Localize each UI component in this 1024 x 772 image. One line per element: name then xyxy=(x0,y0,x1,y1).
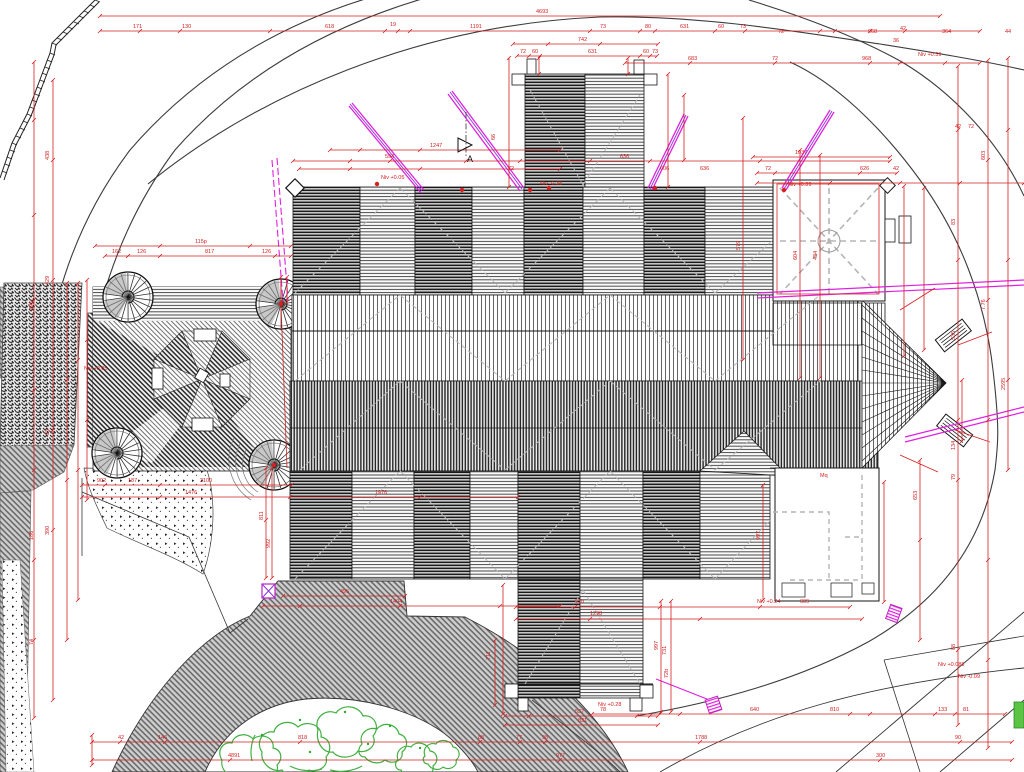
svg-text:42: 42 xyxy=(900,26,906,32)
svg-text:495: 495 xyxy=(340,589,349,595)
svg-text:77: 77 xyxy=(516,735,522,741)
svg-text:72: 72 xyxy=(778,29,784,35)
svg-text:88: 88 xyxy=(478,735,484,741)
svg-text:72: 72 xyxy=(968,124,974,130)
svg-text:631: 631 xyxy=(680,24,689,30)
svg-text:992: 992 xyxy=(266,539,272,548)
svg-text:186: 186 xyxy=(29,531,35,540)
svg-text:968: 968 xyxy=(862,56,871,62)
svg-text:A: A xyxy=(467,154,473,164)
svg-text:134: 134 xyxy=(951,441,957,450)
svg-text:606: 606 xyxy=(660,166,669,172)
svg-text:42: 42 xyxy=(893,166,899,172)
svg-text:72b: 72b xyxy=(664,669,670,678)
svg-text:594: 594 xyxy=(385,154,394,160)
svg-text:Niv +0.39: Niv +0.39 xyxy=(788,182,811,188)
svg-text:73: 73 xyxy=(652,49,658,55)
svg-text:438: 438 xyxy=(45,151,51,160)
svg-text:1404: 1404 xyxy=(390,599,402,605)
svg-text:7.76: 7.76 xyxy=(981,299,987,310)
svg-text:72: 72 xyxy=(508,166,514,172)
svg-text:968: 968 xyxy=(868,29,877,35)
svg-text:44: 44 xyxy=(1005,29,1011,35)
svg-text:618: 618 xyxy=(325,24,334,30)
svg-text:73: 73 xyxy=(740,24,746,30)
svg-text:997: 997 xyxy=(756,531,762,540)
svg-text:653: 653 xyxy=(913,491,919,500)
svg-text:1298: 1298 xyxy=(590,611,602,617)
svg-text:187: 187 xyxy=(128,478,137,484)
svg-text:609: 609 xyxy=(800,599,809,605)
svg-text:73: 73 xyxy=(600,24,606,30)
svg-text:Niv +0.05: Niv +0.05 xyxy=(84,366,107,372)
svg-text:636: 636 xyxy=(700,166,709,172)
svg-text:977: 977 xyxy=(556,753,565,759)
svg-text:36: 36 xyxy=(893,38,899,44)
svg-text:Mq: Mq xyxy=(820,473,828,479)
svg-text:60: 60 xyxy=(643,49,649,55)
svg-text:60: 60 xyxy=(532,49,538,55)
svg-text:72: 72 xyxy=(772,56,778,62)
svg-text:1788: 1788 xyxy=(695,735,707,741)
svg-text:2100: 2100 xyxy=(200,478,212,484)
svg-text:Niv -0.38: Niv -0.38 xyxy=(540,181,562,187)
svg-text:Niv +0.24: Niv +0.24 xyxy=(757,599,780,605)
svg-text:1037: 1037 xyxy=(795,150,807,156)
svg-text:1476: 1476 xyxy=(185,490,197,496)
svg-text:130: 130 xyxy=(182,24,191,30)
svg-text:51b: 51b xyxy=(575,599,584,605)
svg-text:79: 79 xyxy=(951,474,957,480)
svg-text:78: 78 xyxy=(600,707,606,713)
svg-text:83: 83 xyxy=(951,219,957,225)
svg-text:66: 66 xyxy=(491,134,497,140)
svg-text:1191: 1191 xyxy=(470,24,482,30)
svg-text:603: 603 xyxy=(981,151,987,160)
svg-text:579: 579 xyxy=(736,241,742,250)
svg-text:818: 818 xyxy=(298,735,307,741)
svg-text:742: 742 xyxy=(578,37,587,43)
svg-text:604: 604 xyxy=(793,251,799,260)
svg-text:19: 19 xyxy=(390,22,396,28)
svg-text:1247: 1247 xyxy=(430,143,442,149)
svg-text:811: 811 xyxy=(259,511,265,520)
svg-text:300: 300 xyxy=(876,753,885,759)
svg-text:2595: 2595 xyxy=(1001,378,1007,390)
svg-text:80: 80 xyxy=(645,24,651,30)
svg-text:115p: 115p xyxy=(195,239,207,245)
svg-text:731: 731 xyxy=(662,646,668,655)
svg-text:90: 90 xyxy=(955,735,961,741)
svg-text:126: 126 xyxy=(262,249,271,255)
svg-text:4891: 4891 xyxy=(228,753,240,759)
svg-text:42: 42 xyxy=(955,124,961,130)
svg-text:631: 631 xyxy=(588,49,597,55)
svg-text:81: 81 xyxy=(963,707,969,713)
svg-text:429: 429 xyxy=(45,276,51,285)
svg-text:53: 53 xyxy=(45,429,51,435)
svg-text:817: 817 xyxy=(205,249,214,255)
svg-text:Niv +0.05: Niv +0.05 xyxy=(381,175,404,181)
svg-text:997: 997 xyxy=(654,641,660,650)
svg-text:Niv +0.39: Niv +0.39 xyxy=(918,52,941,58)
svg-text:537: 537 xyxy=(575,709,584,715)
svg-text:72: 72 xyxy=(765,166,771,172)
svg-text:683: 683 xyxy=(688,56,697,62)
svg-text:133: 133 xyxy=(938,707,947,713)
svg-text:902: 902 xyxy=(97,478,106,484)
svg-text:4693: 4693 xyxy=(536,9,548,15)
svg-text:434: 434 xyxy=(813,251,819,260)
svg-text:Niv +0.088: Niv +0.088 xyxy=(938,662,964,668)
svg-text:640: 640 xyxy=(750,707,759,713)
svg-text:162: 162 xyxy=(112,249,121,255)
svg-text:390: 390 xyxy=(45,526,51,535)
svg-text:831: 831 xyxy=(578,718,587,724)
svg-text:42: 42 xyxy=(118,735,124,741)
svg-text:60: 60 xyxy=(718,24,724,30)
svg-text:98: 98 xyxy=(542,735,548,741)
svg-text:711: 711 xyxy=(486,651,492,660)
svg-text:171: 171 xyxy=(133,24,142,30)
svg-text:126: 126 xyxy=(137,249,146,255)
svg-text:535: 535 xyxy=(951,331,957,340)
svg-text:88: 88 xyxy=(951,644,957,650)
svg-text:364: 364 xyxy=(942,29,951,35)
svg-text:74: 74 xyxy=(29,639,35,645)
svg-text:72: 72 xyxy=(520,49,526,55)
svg-text:Niv -0.09: Niv -0.09 xyxy=(958,674,980,680)
svg-text:1976: 1976 xyxy=(375,490,387,496)
svg-text:146: 146 xyxy=(158,735,167,741)
svg-text:636: 636 xyxy=(620,154,629,160)
svg-text:496: 496 xyxy=(29,301,35,310)
svg-text:626: 626 xyxy=(860,166,869,172)
svg-text:810: 810 xyxy=(830,707,839,713)
